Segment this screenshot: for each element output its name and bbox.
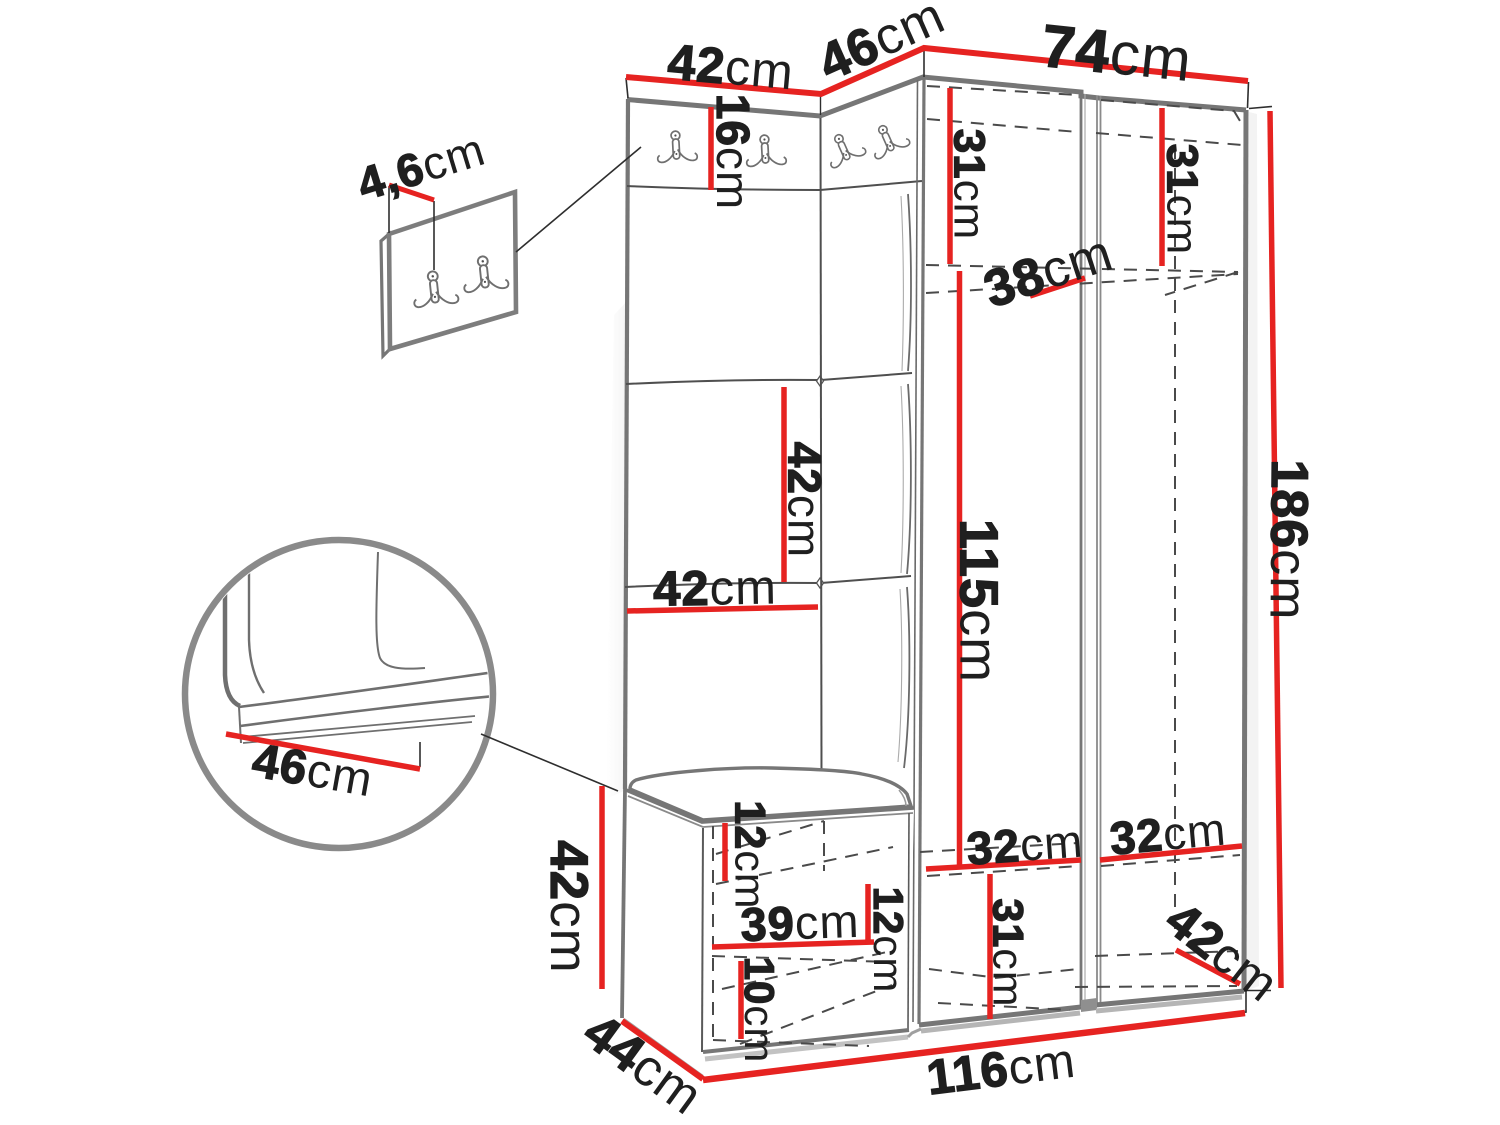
svg-text:115cm: 115cm: [949, 519, 1009, 683]
svg-text:32cm: 32cm: [1108, 803, 1229, 865]
svg-text:42cm: 42cm: [778, 442, 830, 559]
svg-text:12cm: 12cm: [726, 800, 774, 909]
svg-text:32cm: 32cm: [965, 815, 1085, 875]
svg-text:10cm: 10cm: [736, 957, 783, 1064]
svg-text:42cm: 42cm: [653, 561, 778, 617]
svg-text:31cm: 31cm: [1158, 144, 1207, 256]
svg-text:42cm: 42cm: [666, 34, 797, 101]
svg-text:31cm: 31cm: [945, 129, 994, 241]
svg-text:39cm: 39cm: [740, 894, 861, 951]
svg-text:186cm: 186cm: [1258, 459, 1318, 621]
svg-text:12cm: 12cm: [865, 887, 912, 994]
svg-text:16cm: 16cm: [707, 94, 759, 211]
svg-text:31cm: 31cm: [984, 898, 1032, 1007]
svg-text:42cm: 42cm: [539, 840, 598, 974]
